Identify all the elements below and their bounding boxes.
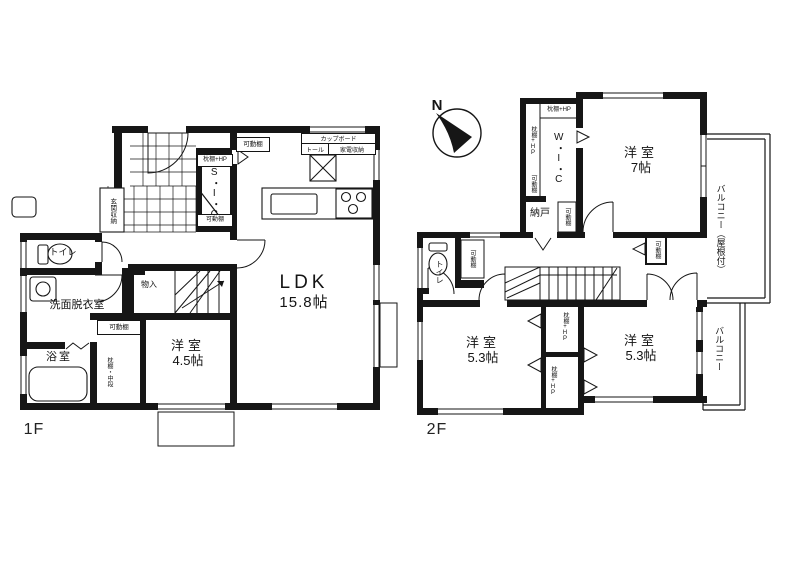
nando-label: 納戸 <box>524 206 556 222</box>
room-size: 15.8帖 <box>279 294 328 311</box>
shelf-label-pillow-hp: 枕棚+HP <box>545 357 560 405</box>
room-name: 洋室 <box>624 146 658 161</box>
balcony-label: バルコニー <box>710 315 728 381</box>
storage-label: 物入 <box>134 279 164 291</box>
window <box>20 276 27 312</box>
room-size: 4.5帖 <box>172 354 203 369</box>
toilet-label-1f: トイレ <box>42 246 84 259</box>
closet-door-marker <box>528 358 541 372</box>
floor1-tag: 1F <box>14 420 54 440</box>
stairs-1f <box>175 271 224 313</box>
ldk-label: LDK 15.8帖 <box>256 266 352 318</box>
side-step-outline <box>380 303 397 367</box>
shelf-label-movable: 可動棚 <box>97 320 141 335</box>
north-label: N <box>426 96 448 116</box>
bedroom53-right-label: 洋室 5.3帖 <box>604 325 678 373</box>
room-size: 7帖 <box>631 161 651 176</box>
shelf-label-movable: 可動棚 <box>236 137 270 152</box>
bath-label: 浴室 <box>38 350 80 364</box>
window <box>373 265 380 300</box>
washroom-label: 洗面脱衣室 <box>34 298 120 312</box>
floor2-tag: 2F <box>417 420 457 440</box>
closet-door-marker <box>584 380 597 394</box>
sic-label: S・I・C <box>206 166 222 220</box>
toilet-door <box>102 242 122 262</box>
toilet-label-2f: トイレ <box>432 250 447 294</box>
shelf-label-pillow-hp: 枕棚+HP <box>557 303 572 351</box>
window <box>310 126 365 133</box>
closet-door-marker <box>528 314 541 328</box>
closet-door-marker <box>584 348 597 362</box>
bedroom45-label: 洋室 4.5帖 <box>146 331 230 377</box>
room-size: 5.3帖 <box>467 351 498 366</box>
bedroom7-label: 洋室 7帖 <box>608 136 674 186</box>
bathtub-icon <box>29 367 87 401</box>
shelf-label-pillow-mid: 枕棚・中段 <box>101 343 116 401</box>
window <box>696 312 703 340</box>
shelf-label-movable: 可動棚 <box>525 168 540 200</box>
shelf-label-pillow-hp: 枕棚+HP <box>525 117 540 165</box>
window <box>158 403 225 410</box>
shelf-label-pillow-hp: 枕棚+HP <box>541 104 577 116</box>
floor-plan: 可動棚 カップボード トール 家電収納 枕棚+HP S・I・C 可動棚 玄関収納… <box>0 0 800 568</box>
floor-plan-linework <box>0 0 800 568</box>
bedroom53-left-label: 洋室 5.3帖 <box>446 327 520 375</box>
refrigerator-box <box>310 155 336 181</box>
window <box>438 408 503 415</box>
room-name: 洋室 <box>171 339 205 354</box>
room-name: 洋室 <box>624 334 658 349</box>
bedroom7-door <box>583 202 613 232</box>
stove-icon <box>336 189 372 218</box>
room-size: 5.3帖 <box>625 349 656 364</box>
room-name: 洋室 <box>466 336 500 351</box>
stairs-2f <box>505 267 620 300</box>
shelf-label-movable: 可動棚 <box>559 203 574 231</box>
wic-label: W・I・C <box>549 126 568 190</box>
kitchen-sink <box>271 194 317 214</box>
sic-door-marker <box>238 150 248 164</box>
tall-cabinet-label: トール <box>302 144 329 154</box>
cupboard-unit: カップボード トール 家電収納 <box>301 133 376 155</box>
shelf-door-marker <box>633 243 645 255</box>
balcony-roofed-label: バルコニー（屋根付） <box>711 150 730 308</box>
terrace-outline <box>158 412 234 446</box>
ldk-door <box>237 240 265 268</box>
room-name: LDK <box>280 272 329 294</box>
hall-door-a <box>647 274 673 300</box>
cupboard-label: カップボード <box>302 134 375 144</box>
window <box>20 356 27 394</box>
window <box>595 396 653 403</box>
north-compass-icon <box>433 109 481 157</box>
window <box>696 352 703 374</box>
window <box>417 248 423 288</box>
window <box>603 92 663 99</box>
window <box>373 305 380 367</box>
window <box>417 322 423 360</box>
shelf-label-movable: 可動棚 <box>649 237 664 263</box>
window <box>272 403 337 410</box>
hall-door-b <box>670 273 697 300</box>
nando-folding-door <box>535 238 551 250</box>
bath-folding-door <box>66 343 89 349</box>
entrance-storage-label: 玄関収納 <box>104 190 120 232</box>
shelf-label-movable: 可動棚 <box>197 214 233 227</box>
window <box>20 242 27 268</box>
window <box>470 232 500 238</box>
window <box>700 135 707 197</box>
appliance-storage-label: 家電収納 <box>329 144 375 154</box>
meter-box <box>12 197 36 217</box>
wic-door-marker <box>577 131 589 143</box>
shelf-label-movable: 可動棚 <box>464 242 479 276</box>
